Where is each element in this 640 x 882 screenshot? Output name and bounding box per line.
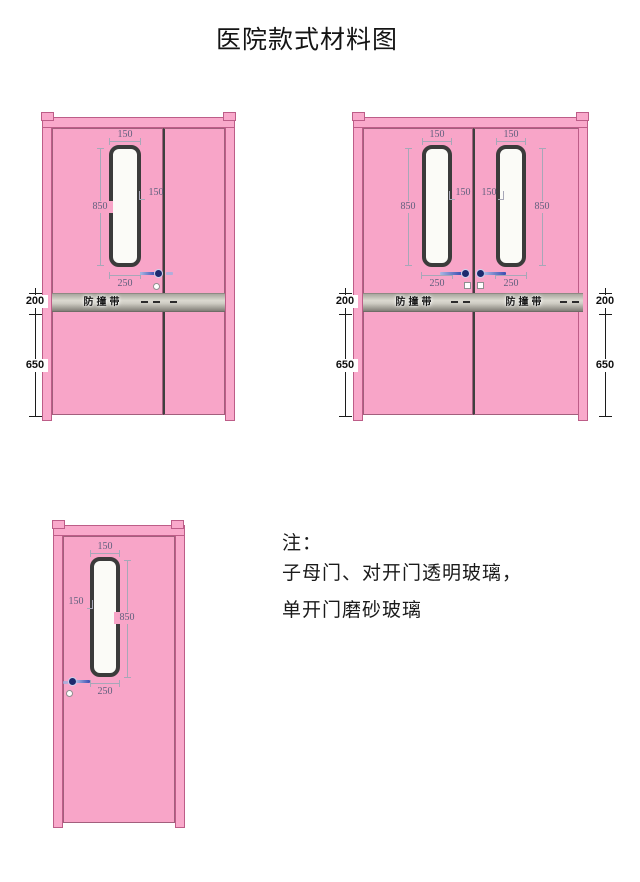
- door-frame-ear-right: [223, 112, 236, 121]
- note-line-2: 单开门磨砂玻璃: [282, 595, 422, 622]
- door-handle-icon: [440, 272, 462, 275]
- page-title: 医院款式材料图: [0, 20, 614, 56]
- dimension-label-window-width: 150: [422, 129, 452, 141]
- dimension-label-side-offset: 150: [144, 187, 168, 199]
- dimension-line-window-bottom: [495, 275, 527, 276]
- dimension-label-window-height: 850: [87, 201, 113, 213]
- anti-collision-band-label: 防撞带: [73, 296, 133, 309]
- dimension-label-window-width: 150: [496, 129, 526, 141]
- dimension-label-center-offset: 150: [452, 187, 474, 199]
- dimension-label-center-offset: 150: [478, 187, 500, 199]
- dimension-label-window-width: 150: [90, 541, 120, 553]
- dimension-label-window-bottom: 250: [109, 278, 141, 290]
- double-door-diagram: 150 850 150 250 150 850 150 250 防撞带 防撞带: [345, 112, 635, 427]
- dimension-line-window-bottom: [109, 275, 141, 276]
- material-diagram-page: 医院款式材料图 150 850 150 250 防撞带 200: [0, 0, 640, 882]
- door-lock-icon: [66, 690, 73, 697]
- door-handle-knob-icon: [477, 270, 484, 277]
- dimension-label-window-height: 850: [114, 612, 140, 624]
- door-handle-strike-icon: [166, 272, 173, 275]
- door-frame-ear-right: [171, 520, 184, 529]
- door-frame-ear-left: [52, 520, 65, 529]
- door-handle-knob-icon: [462, 270, 469, 277]
- band-dash-mark: [451, 301, 458, 303]
- door-frame-jamb-right: [175, 535, 185, 828]
- dimension-label-window-width: 150: [109, 129, 141, 141]
- dimension-label-window-bottom: 250: [495, 278, 527, 290]
- door-frame-ear-right: [576, 112, 589, 121]
- door-frame-lintel: [53, 525, 185, 536]
- dimension-label-below-band: 650: [22, 359, 48, 372]
- dimension-line-window-width: [90, 553, 120, 554]
- door-lock-icon: [464, 282, 471, 289]
- dimension-tick: [599, 314, 612, 315]
- note-line-1: 子母门、对开门透明玻璃，: [282, 558, 522, 585]
- door-frame-ear-left: [41, 112, 54, 121]
- dimension-line-window-width: [496, 141, 526, 142]
- dimension-label-side-offset: 150: [64, 596, 88, 608]
- door-frame-lintel: [42, 117, 235, 128]
- door-frame-jamb-left: [53, 535, 63, 828]
- dimension-label-window-height: 850: [529, 201, 555, 213]
- dimension-tick: [29, 314, 42, 315]
- mother-child-door-diagram: 150 850 150 250 防撞带 200 650: [35, 112, 285, 427]
- dimension-label-band-height: 200: [22, 295, 48, 308]
- door-vision-panel-left: [422, 145, 452, 267]
- dimension-label-window-bottom: 250: [421, 278, 453, 290]
- dimension-label-below-band: 650: [332, 359, 358, 372]
- dimension-label-below-band: 650: [592, 359, 618, 372]
- door-handle-icon: [76, 680, 90, 683]
- note-block: 注： 子母门、对开门透明玻璃， 单开门磨砂玻璃: [282, 520, 582, 640]
- door-handle-strike-icon: [63, 681, 68, 684]
- band-dash-mark: [463, 301, 470, 303]
- door-frame-jamb-right: [225, 127, 235, 421]
- door-frame-jamb-left: [353, 127, 363, 421]
- door-handle-knob-icon: [69, 678, 76, 685]
- door-frame-jamb-right: [578, 127, 588, 421]
- anti-collision-band-label: 防撞带: [495, 296, 555, 309]
- door-handle-knob-icon: [155, 270, 162, 277]
- note-heading: 注：: [282, 528, 322, 555]
- band-dash-mark: [141, 301, 148, 303]
- dimension-tick: [339, 314, 352, 315]
- door-frame-ear-left: [352, 112, 365, 121]
- dimension-label-band-height: 200: [332, 295, 358, 308]
- dimension-leader-mark: [498, 191, 504, 200]
- door-lock-icon: [477, 282, 484, 289]
- dimension-tick: [29, 293, 42, 294]
- single-door-diagram: 150 150 850 250: [50, 520, 250, 835]
- dimension-tick: [599, 293, 612, 294]
- door-handle-icon: [140, 272, 156, 275]
- dimension-tick: [339, 416, 352, 417]
- band-dash-mark: [153, 301, 160, 303]
- dimension-line-window-width: [422, 141, 452, 142]
- door-vision-panel-right: [496, 145, 526, 267]
- anti-collision-band-label: 防撞带: [385, 296, 445, 309]
- dimension-label-window-bottom: 250: [90, 686, 120, 698]
- band-dash-mark: [170, 301, 177, 303]
- dimension-line-window-bottom: [90, 683, 120, 684]
- band-dash-mark: [572, 301, 579, 303]
- dimension-leader-mark: [87, 600, 93, 609]
- door-handle-icon: [484, 272, 506, 275]
- door-vision-panel: [109, 145, 141, 267]
- dimension-label-band-height: 200: [592, 295, 618, 308]
- door-frame-jamb-left: [42, 127, 52, 421]
- door-frame-lintel: [353, 117, 588, 128]
- dimension-line-window-width: [109, 141, 141, 142]
- dimension-tick: [599, 416, 612, 417]
- door-lock-icon: [153, 283, 160, 290]
- dimension-tick: [339, 293, 352, 294]
- dimension-line-window-bottom: [421, 275, 453, 276]
- dimension-tick: [29, 416, 42, 417]
- band-dash-mark: [560, 301, 567, 303]
- dimension-label-window-height: 850: [395, 201, 421, 213]
